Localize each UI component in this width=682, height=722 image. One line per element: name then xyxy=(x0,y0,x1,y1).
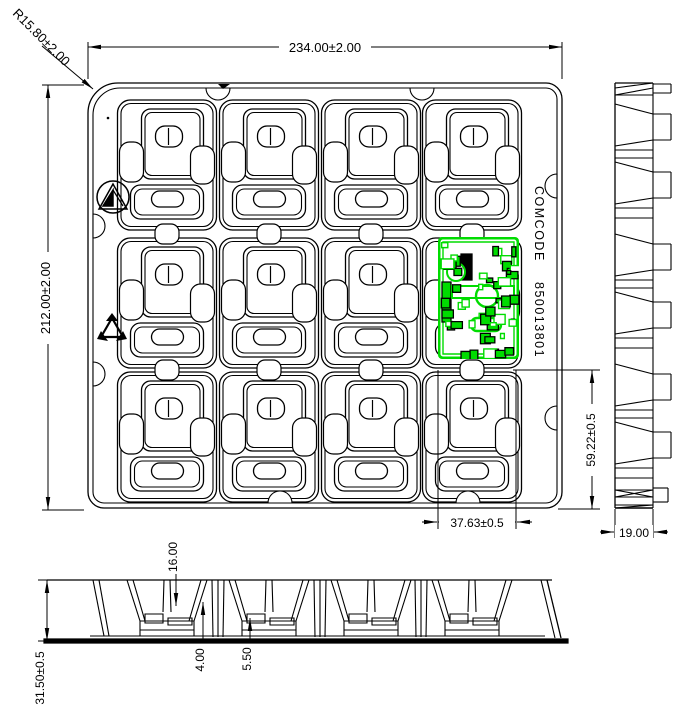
front-pocket-section xyxy=(432,580,512,636)
pocket-r1-c4 xyxy=(423,100,522,230)
pcb-board xyxy=(439,238,521,362)
front-pocket-section xyxy=(331,580,411,636)
pocket-r3-c2 xyxy=(220,372,319,502)
dim-pocket-height: 59.22±0.5 xyxy=(584,413,598,467)
plan-view: COMCODE 850013801 xyxy=(88,83,562,508)
pocket-r2-c3 xyxy=(322,238,421,368)
dim-step-b: 5.50 xyxy=(240,647,254,671)
front-view xyxy=(44,580,568,643)
dim-side-width: 19.00 xyxy=(619,526,649,540)
dim-corner-radius: R15.80±2.00 xyxy=(10,6,73,69)
datum-dot xyxy=(107,117,110,120)
pocket-r2-c2 xyxy=(220,238,319,368)
pocket-r3-c3 xyxy=(322,372,421,502)
pocket-r1-c3 xyxy=(322,100,421,230)
dim-step-a: 4.00 xyxy=(193,648,207,672)
dim-overall-width: 234.00±2.00 xyxy=(289,40,361,55)
front-pocket-section xyxy=(229,580,309,636)
pocket-r2-c1 xyxy=(118,238,217,368)
tray-technical-drawing: COMCODE 850013801 234.00±2.00 212.00±2.0… xyxy=(0,0,682,722)
dim-thickness: 31.50±0.5 xyxy=(33,651,47,705)
pocket-r1-c1 xyxy=(118,100,217,230)
side-view xyxy=(615,83,671,508)
front-pocket-section xyxy=(127,580,207,636)
comcode-label: COMCODE xyxy=(532,186,546,262)
comcode-number: 850013801 xyxy=(532,282,546,358)
pocket-r3-c1 xyxy=(118,372,217,502)
dim-overall-height: 212.00±2.00 xyxy=(38,262,53,334)
pocket-r3-c4 xyxy=(423,372,522,502)
pocket-r1-c2 xyxy=(220,100,319,230)
dim-pocket-width: 37.63±0.5 xyxy=(450,516,504,530)
drawing-page: COMCODE 850013801 234.00±2.00 212.00±2.0… xyxy=(0,0,682,722)
dim-pocket-depth: 16.00 xyxy=(166,542,180,572)
